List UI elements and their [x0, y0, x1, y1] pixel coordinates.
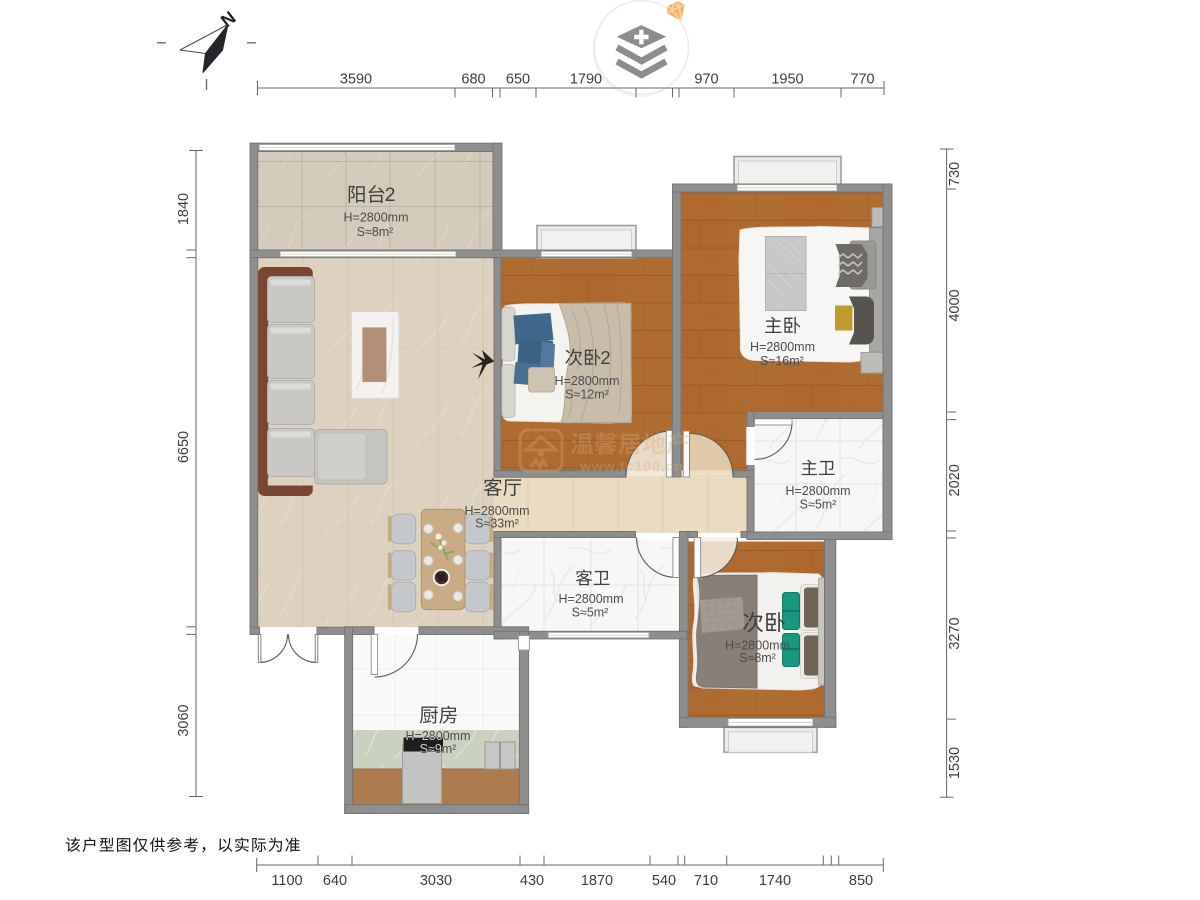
svg-text:970: 970	[694, 72, 718, 88]
svg-text:www.tc100.cn: www.tc100.cn	[579, 458, 684, 474]
svg-text:430: 430	[520, 873, 544, 889]
svg-text:S≈5m²: S≈5m²	[572, 606, 609, 620]
svg-text:1530: 1530	[947, 747, 963, 779]
svg-text:H=2800mm: H=2800mm	[559, 592, 624, 606]
svg-text:650: 650	[506, 72, 530, 88]
svg-text:S≈12m²: S≈12m²	[565, 388, 609, 402]
svg-text:710: 710	[694, 873, 718, 889]
svg-text:2: 2	[600, 347, 610, 368]
svg-text:2020: 2020	[947, 464, 963, 496]
svg-text:1870: 1870	[581, 873, 613, 889]
svg-text:H=2800mm: H=2800mm	[786, 484, 851, 498]
svg-text:S≈16m²: S≈16m²	[760, 354, 804, 368]
svg-text:1100: 1100	[271, 873, 302, 889]
svg-text:S≈8m²: S≈8m²	[739, 651, 776, 665]
svg-text:540: 540	[652, 873, 676, 889]
svg-text:H=2800mm: H=2800mm	[344, 211, 409, 225]
svg-text:S≈33m²: S≈33m²	[475, 517, 519, 531]
svg-text:H=2800mm: H=2800mm	[555, 374, 620, 388]
svg-text:770: 770	[850, 72, 874, 88]
svg-text:2: 2	[385, 184, 396, 206]
svg-text:850: 850	[849, 873, 873, 889]
svg-text:1950: 1950	[771, 72, 803, 88]
svg-text:1840: 1840	[176, 193, 192, 225]
svg-text:S≈5m²: S≈5m²	[800, 498, 837, 512]
svg-text:680: 680	[461, 72, 485, 88]
svg-text:S≈8m²: S≈8m²	[357, 225, 394, 239]
svg-text:3030: 3030	[420, 873, 452, 889]
svg-text:730: 730	[947, 162, 963, 186]
svg-text:3590: 3590	[340, 72, 372, 88]
svg-text:3270: 3270	[947, 617, 963, 649]
svg-text:1790: 1790	[570, 72, 602, 88]
svg-text:1740: 1740	[759, 873, 791, 889]
svg-text:3060: 3060	[176, 704, 192, 736]
svg-text:H=2800mm: H=2800mm	[750, 340, 815, 354]
svg-text:6650: 6650	[176, 431, 192, 463]
svg-text:640: 640	[323, 873, 347, 889]
svg-text:4000: 4000	[947, 289, 963, 321]
